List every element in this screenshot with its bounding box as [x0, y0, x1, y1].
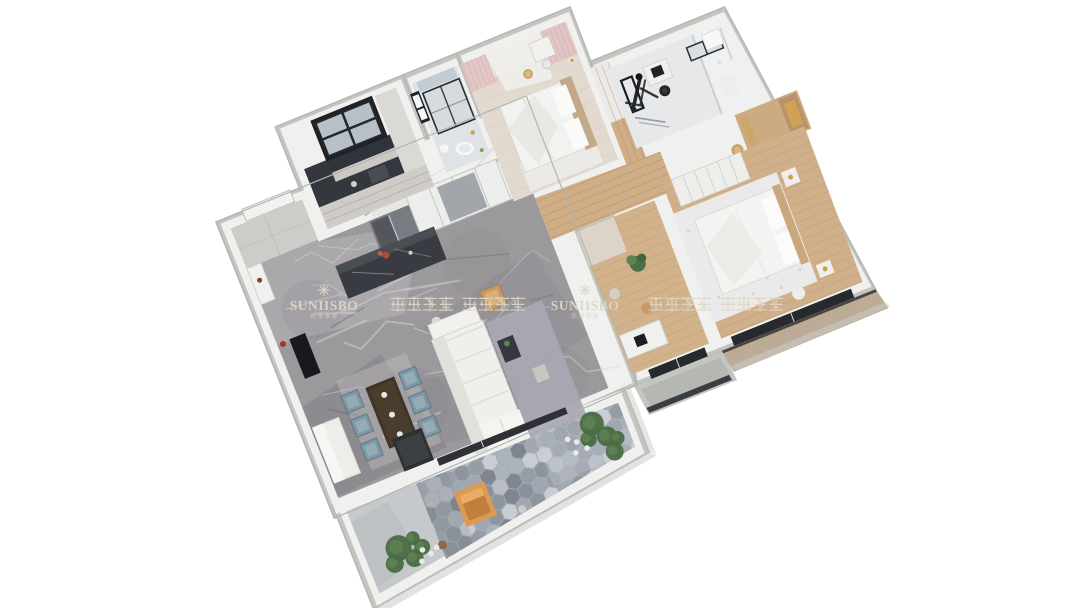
svg-text:SUNIISBO: SUNIISBO: [551, 298, 620, 313]
svg-text:SUNIISBO: SUNIISBO: [290, 298, 359, 313]
